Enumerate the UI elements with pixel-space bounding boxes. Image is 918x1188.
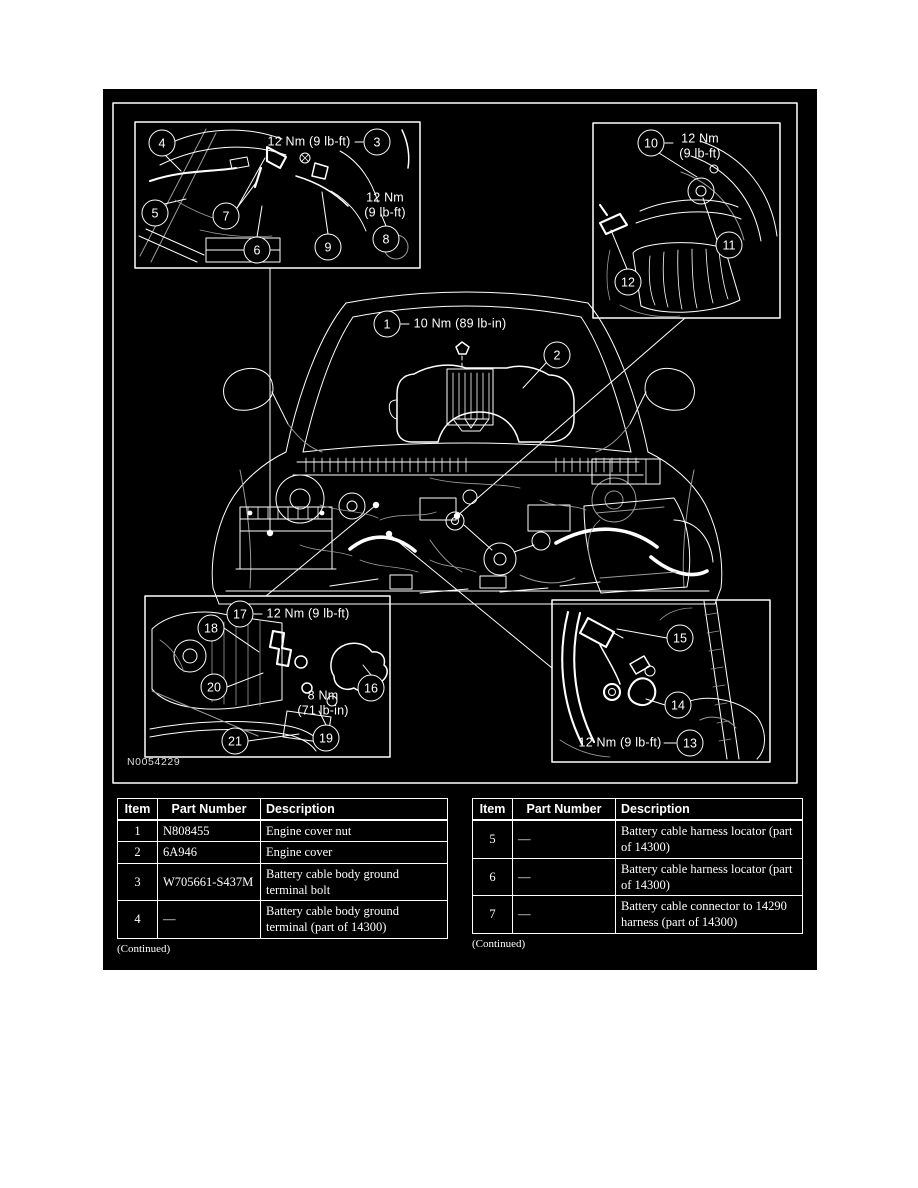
torque-label-7: 12 Nm (9 lb-ft) <box>579 736 662 751</box>
figure-id: N0054229 <box>127 756 180 768</box>
header-item: Item <box>473 799 513 821</box>
part-cell: — <box>513 896 616 934</box>
callout-8: 8 <box>373 226 400 253</box>
torque-label-1: 12 Nm (9 lb-ft) <box>268 135 351 150</box>
table-row: 4—Battery cable body ground terminal (pa… <box>118 901 448 939</box>
table-row: 6—Battery cable harness locator (part of… <box>473 858 803 896</box>
callout-6: 6 <box>244 237 271 264</box>
part-cell: N808455 <box>158 820 261 842</box>
callout-12: 12 <box>615 269 642 296</box>
callout-17: 17 <box>227 601 254 628</box>
table-header-row: Item Part Number Description <box>473 799 803 821</box>
table-row: 3W705661-S437MBattery cable body ground … <box>118 863 448 901</box>
callout-15: 15 <box>667 625 694 652</box>
callout-13: 13 <box>677 730 704 757</box>
torque-label-3: 12 Nm (9 lb-ft) <box>679 131 720 161</box>
callout-20: 20 <box>201 674 228 701</box>
torque-label-4: 10 Nm (89 lb-in) <box>414 317 507 332</box>
continued-note-left: (Continued) <box>117 943 447 955</box>
callout-4: 4 <box>149 130 176 157</box>
item-cell: 6 <box>473 858 513 896</box>
table-row: 26A946Engine cover <box>118 842 448 863</box>
header-description: Description <box>261 799 448 821</box>
part-cell: — <box>513 858 616 896</box>
header-part-number: Part Number <box>513 799 616 821</box>
part-cell: — <box>158 901 261 939</box>
desc-cell: Battery cable harness locator (part of 1… <box>616 858 803 896</box>
desc-cell: Battery cable connector to 14290 harness… <box>616 896 803 934</box>
parts-table-right: Item Part Number Description 5—Battery c… <box>472 798 802 950</box>
header-item: Item <box>118 799 158 821</box>
table-row: 7—Battery cable connector to 14290 harne… <box>473 896 803 934</box>
parts-table-left-grid: Item Part Number Description 1N808455Eng… <box>117 798 448 939</box>
item-cell: 2 <box>118 842 158 863</box>
callout-16: 16 <box>358 675 385 702</box>
table-header-row: Item Part Number Description <box>118 799 448 821</box>
continued-note-right: (Continued) <box>472 938 802 950</box>
table-row: 1N808455Engine cover nut <box>118 820 448 842</box>
callout-19: 19 <box>313 725 340 752</box>
callout-7: 7 <box>213 203 240 230</box>
callout-14: 14 <box>665 692 692 719</box>
manual-page: 123456789101112131415161718192021 12 Nm … <box>0 0 918 1188</box>
callout-3: 3 <box>364 129 391 156</box>
part-cell: — <box>513 820 616 858</box>
parts-table-left: Item Part Number Description 1N808455Eng… <box>117 798 447 955</box>
part-cell: 6A946 <box>158 842 261 863</box>
item-cell: 1 <box>118 820 158 842</box>
callout-10: 10 <box>638 130 665 157</box>
part-cell: W705661-S437M <box>158 863 261 901</box>
torque-label-6: 8 Nm (71 lb-in) <box>297 688 348 718</box>
header-description: Description <box>616 799 803 821</box>
desc-cell: Engine cover <box>261 842 448 863</box>
callout-18: 18 <box>198 615 225 642</box>
parts-table-right-body: 5—Battery cable harness locator (part of… <box>473 820 803 933</box>
table-row: 5—Battery cable harness locator (part of… <box>473 820 803 858</box>
callout-11: 11 <box>716 232 743 259</box>
desc-cell: Battery cable body ground terminal (part… <box>261 901 448 939</box>
parts-table-right-grid: Item Part Number Description 5—Battery c… <box>472 798 803 934</box>
callout-5: 5 <box>142 200 169 227</box>
callout-1: 1 <box>374 311 401 338</box>
desc-cell: Engine cover nut <box>261 820 448 842</box>
desc-cell: Battery cable body ground terminal bolt <box>261 863 448 901</box>
torque-label-5: 12 Nm (9 lb-ft) <box>267 607 350 622</box>
desc-cell: Battery cable harness locator (part of 1… <box>616 820 803 858</box>
header-part-number: Part Number <box>158 799 261 821</box>
callout-21: 21 <box>222 728 249 755</box>
torque-label-2: 12 Nm (9 lb-ft) <box>364 190 405 220</box>
item-cell: 5 <box>473 820 513 858</box>
item-cell: 7 <box>473 896 513 934</box>
item-cell: 3 <box>118 863 158 901</box>
item-cell: 4 <box>118 901 158 939</box>
callout-2: 2 <box>544 342 571 369</box>
callout-9: 9 <box>315 234 342 261</box>
parts-table-left-body: 1N808455Engine cover nut26A946Engine cov… <box>118 820 448 938</box>
